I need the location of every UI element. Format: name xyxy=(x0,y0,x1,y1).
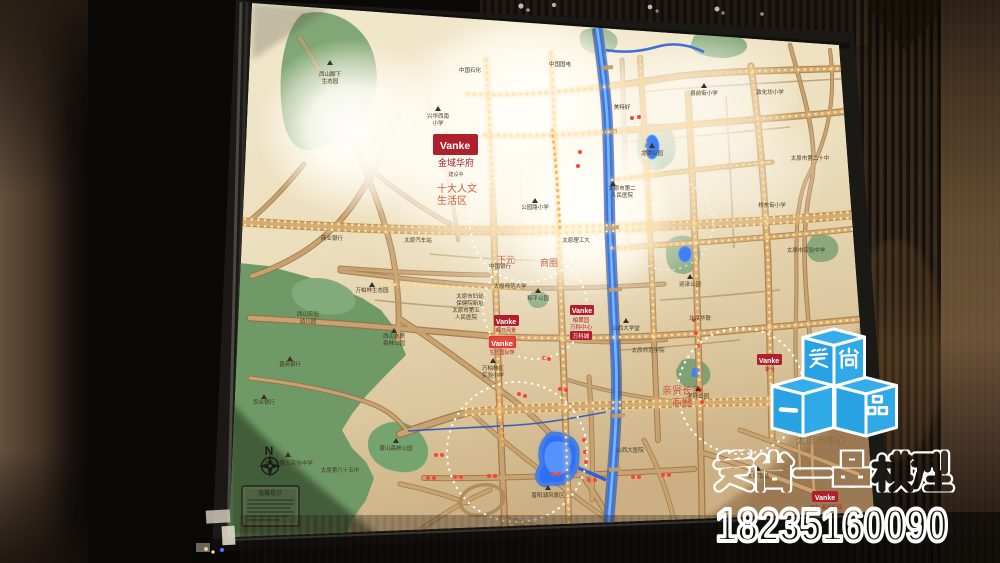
svg-text:农业银行: 农业银行 xyxy=(253,398,276,406)
svg-text:Vanke: Vanke xyxy=(572,308,592,315)
svg-text:实验小学: 实验小学 xyxy=(482,371,505,379)
svg-text:小学: 小学 xyxy=(432,119,444,127)
svg-text:Vanke: Vanke xyxy=(496,319,516,326)
svg-text:柏翠园: 柏翠园 xyxy=(573,316,590,324)
svg-text:太原市实验中学: 太原市实验中学 xyxy=(787,246,826,254)
svg-text:公园路小学: 公园路小学 xyxy=(521,203,549,211)
svg-text:建设中: 建设中 xyxy=(448,171,463,178)
svg-text:太原第六十五中: 太原第六十五中 xyxy=(321,466,360,474)
svg-text:中国银行: 中国银行 xyxy=(489,262,512,270)
svg-text:桥东街小学: 桥东街小学 xyxy=(758,201,786,209)
svg-text:蒙山森林公园: 蒙山森林公园 xyxy=(379,444,413,452)
svg-text:美特好: 美特好 xyxy=(614,103,631,111)
svg-text:万柏林生态园: 万柏林生态园 xyxy=(355,286,389,294)
svg-text:Vanke: Vanke xyxy=(759,358,779,365)
svg-text:商业银行: 商业银行 xyxy=(321,234,344,242)
svg-text:中国国电: 中国国电 xyxy=(549,60,572,68)
svg-text:十大人文: 十大人文 xyxy=(437,182,477,195)
svg-text:西山水质: 西山水质 xyxy=(383,332,406,340)
svg-text:生活国际馆: 生活国际馆 xyxy=(489,349,514,356)
svg-text:保健院新址: 保健院新址 xyxy=(456,299,484,307)
svg-text:学府公园: 学府公园 xyxy=(687,392,710,400)
svg-text:中国石化: 中国石化 xyxy=(459,66,482,74)
svg-text:幼儿园: 幼儿园 xyxy=(300,317,317,325)
svg-text:西山实验: 西山实验 xyxy=(297,310,320,318)
svg-text:紫台: 紫台 xyxy=(765,366,775,373)
svg-text:万科中心: 万科中心 xyxy=(570,323,593,331)
svg-text:假日风景: 假日风景 xyxy=(496,327,516,334)
svg-text:太原理工大: 太原理工大 xyxy=(562,236,590,244)
svg-text:西山脚下: 西山脚下 xyxy=(319,70,342,78)
svg-text:晋阳湖风景区: 晋阳湖风景区 xyxy=(531,491,565,499)
svg-text:森林公园: 森林公园 xyxy=(383,339,406,347)
svg-text:敦化坊小学: 敦化坊小学 xyxy=(756,88,784,96)
svg-text:太原汽车站: 太原汽车站 xyxy=(404,236,432,244)
svg-text:商圈: 商圈 xyxy=(540,257,558,268)
svg-text:金域华府: 金域华府 xyxy=(438,157,474,168)
svg-text:太原市妇幼: 太原市妇幼 xyxy=(456,292,484,300)
svg-text:生活区: 生活区 xyxy=(437,194,467,207)
svg-text:Vanke: Vanke xyxy=(491,339,513,348)
svg-text:和平公园: 和平公园 xyxy=(527,294,550,302)
svg-text:太原市第五: 太原市第五 xyxy=(452,306,480,314)
svg-text:生态园: 生态园 xyxy=(322,77,339,85)
svg-text:18235160090: 18235160090 xyxy=(716,499,948,551)
svg-text:太原师范大学: 太原师范大学 xyxy=(493,282,527,290)
svg-text:县前街小学: 县前街小学 xyxy=(690,89,718,97)
svg-text:太原师范学院: 太原师范学院 xyxy=(631,346,665,354)
svg-text:人民医院: 人民医院 xyxy=(455,313,478,321)
svg-text:Vanke: Vanke xyxy=(440,140,471,152)
svg-text:迎泽公园: 迎泽公园 xyxy=(679,280,702,288)
svg-text:万科城: 万科城 xyxy=(573,332,590,340)
svg-text:龙潭公园: 龙潭公园 xyxy=(641,149,664,157)
svg-text:万柏林区: 万柏林区 xyxy=(482,364,505,372)
svg-text:北京华联: 北京华联 xyxy=(689,314,712,322)
svg-text:山西大学堂: 山西大学堂 xyxy=(612,324,640,332)
svg-text:太原市第二十中: 太原市第二十中 xyxy=(791,154,830,162)
svg-text:山西大医院: 山西大医院 xyxy=(616,446,644,454)
svg-text:人民医院: 人民医院 xyxy=(611,191,634,199)
svg-text:晋商银行: 晋商银行 xyxy=(279,360,302,368)
svg-text:兴华西南: 兴华西南 xyxy=(427,112,450,120)
